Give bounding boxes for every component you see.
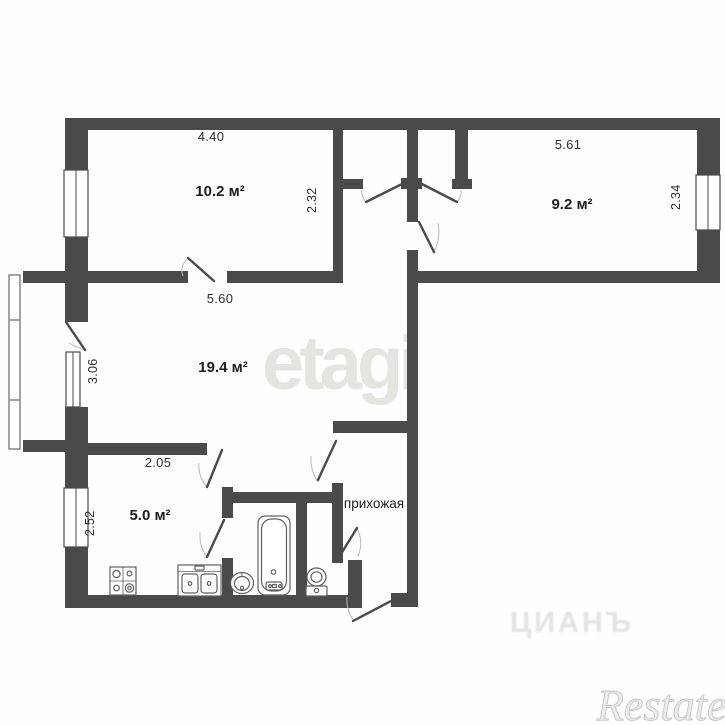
dimension-room-9-2-width: 5.61 xyxy=(538,137,598,152)
stove-icon xyxy=(110,567,136,595)
wall-center-upper xyxy=(407,130,418,222)
wall-room102-bottom-left xyxy=(65,271,188,283)
door-swing-arc xyxy=(311,456,318,482)
door-swing-arc xyxy=(362,190,366,202)
bathtub-icon xyxy=(258,516,290,595)
wall-balcony-stub-top xyxy=(23,271,65,283)
dimension-living-left: 3.06 xyxy=(86,345,100,397)
window-icon xyxy=(696,175,720,230)
door-swing-arc xyxy=(200,532,207,557)
wall-exterior-right-upper xyxy=(697,130,720,175)
walls xyxy=(23,118,720,608)
floor-plan: etagi xyxy=(0,0,725,725)
door-leaf xyxy=(366,183,404,202)
window-icon xyxy=(66,352,80,407)
dimension-room-10-2-depth: 2.32 xyxy=(305,174,319,226)
dimension-kitchen-left: 2.52 xyxy=(83,497,97,549)
door-leaf xyxy=(207,520,224,557)
dimension-room-9-2-depth: 2.34 xyxy=(669,171,683,223)
door-swing-arc xyxy=(457,190,461,202)
dimension-kitchen-width: 2.05 xyxy=(128,455,188,470)
room-area-kitchen: 5.0 м² xyxy=(99,507,201,524)
dimension-room-10-2-width: 4.40 xyxy=(181,129,241,144)
toilet-icon xyxy=(306,568,327,596)
wall-entrance-jamb xyxy=(348,560,362,608)
door-swing-arc xyxy=(357,528,361,556)
door-leaf xyxy=(419,222,434,252)
door-leaf xyxy=(188,258,214,281)
windows xyxy=(64,170,720,547)
room-area-19-4: 19.4 м² xyxy=(172,359,274,376)
wall-exterior-left-3 xyxy=(65,407,88,488)
fixtures xyxy=(110,516,327,596)
wall-bathroom-top xyxy=(233,492,343,503)
door-leaf xyxy=(318,441,336,480)
wall-exterior-top xyxy=(65,118,720,130)
washbasin-icon xyxy=(231,573,254,594)
wall-hallway-top xyxy=(333,421,418,433)
wall-room102-bottom-right xyxy=(227,271,343,283)
window-icon xyxy=(64,170,88,237)
wall-room92-bottom xyxy=(418,271,720,283)
wall-closet-right xyxy=(455,130,468,179)
wall-closet-left-stub xyxy=(343,179,363,189)
room-label-hallway: прихожая xyxy=(333,496,415,511)
wall-kitchen-right-upper xyxy=(222,487,233,518)
door-swing-arc xyxy=(434,223,439,252)
wall-balcony-stub-bottom xyxy=(23,440,65,452)
wall-bathroom-wc-divider xyxy=(296,503,307,597)
wall-closet-right-foot xyxy=(452,179,472,189)
wall-exterior-bottom xyxy=(65,595,350,608)
room-area-9-2: 9.2 м² xyxy=(521,196,623,213)
wall-exterior-left-4 xyxy=(65,547,88,600)
room-area-10-2: 10.2 м² xyxy=(169,183,271,200)
watermark-portal: ЦИАНЪ xyxy=(510,607,634,640)
kitchen-sink-icon xyxy=(178,565,221,596)
balcony-icon xyxy=(9,275,20,449)
wall-kitchen-top xyxy=(88,443,207,455)
wall-entrance-right xyxy=(391,593,418,607)
door-leaf xyxy=(420,183,457,202)
wall-exterior-left-1 xyxy=(65,130,88,170)
watermark-agency: Restate xyxy=(597,680,725,725)
door-leaf xyxy=(207,450,222,487)
wall-hallway-west xyxy=(332,483,343,563)
dimension-living-width: 5.60 xyxy=(190,291,250,306)
door-swing-arc xyxy=(199,463,207,487)
wall-room102-right xyxy=(333,130,343,271)
